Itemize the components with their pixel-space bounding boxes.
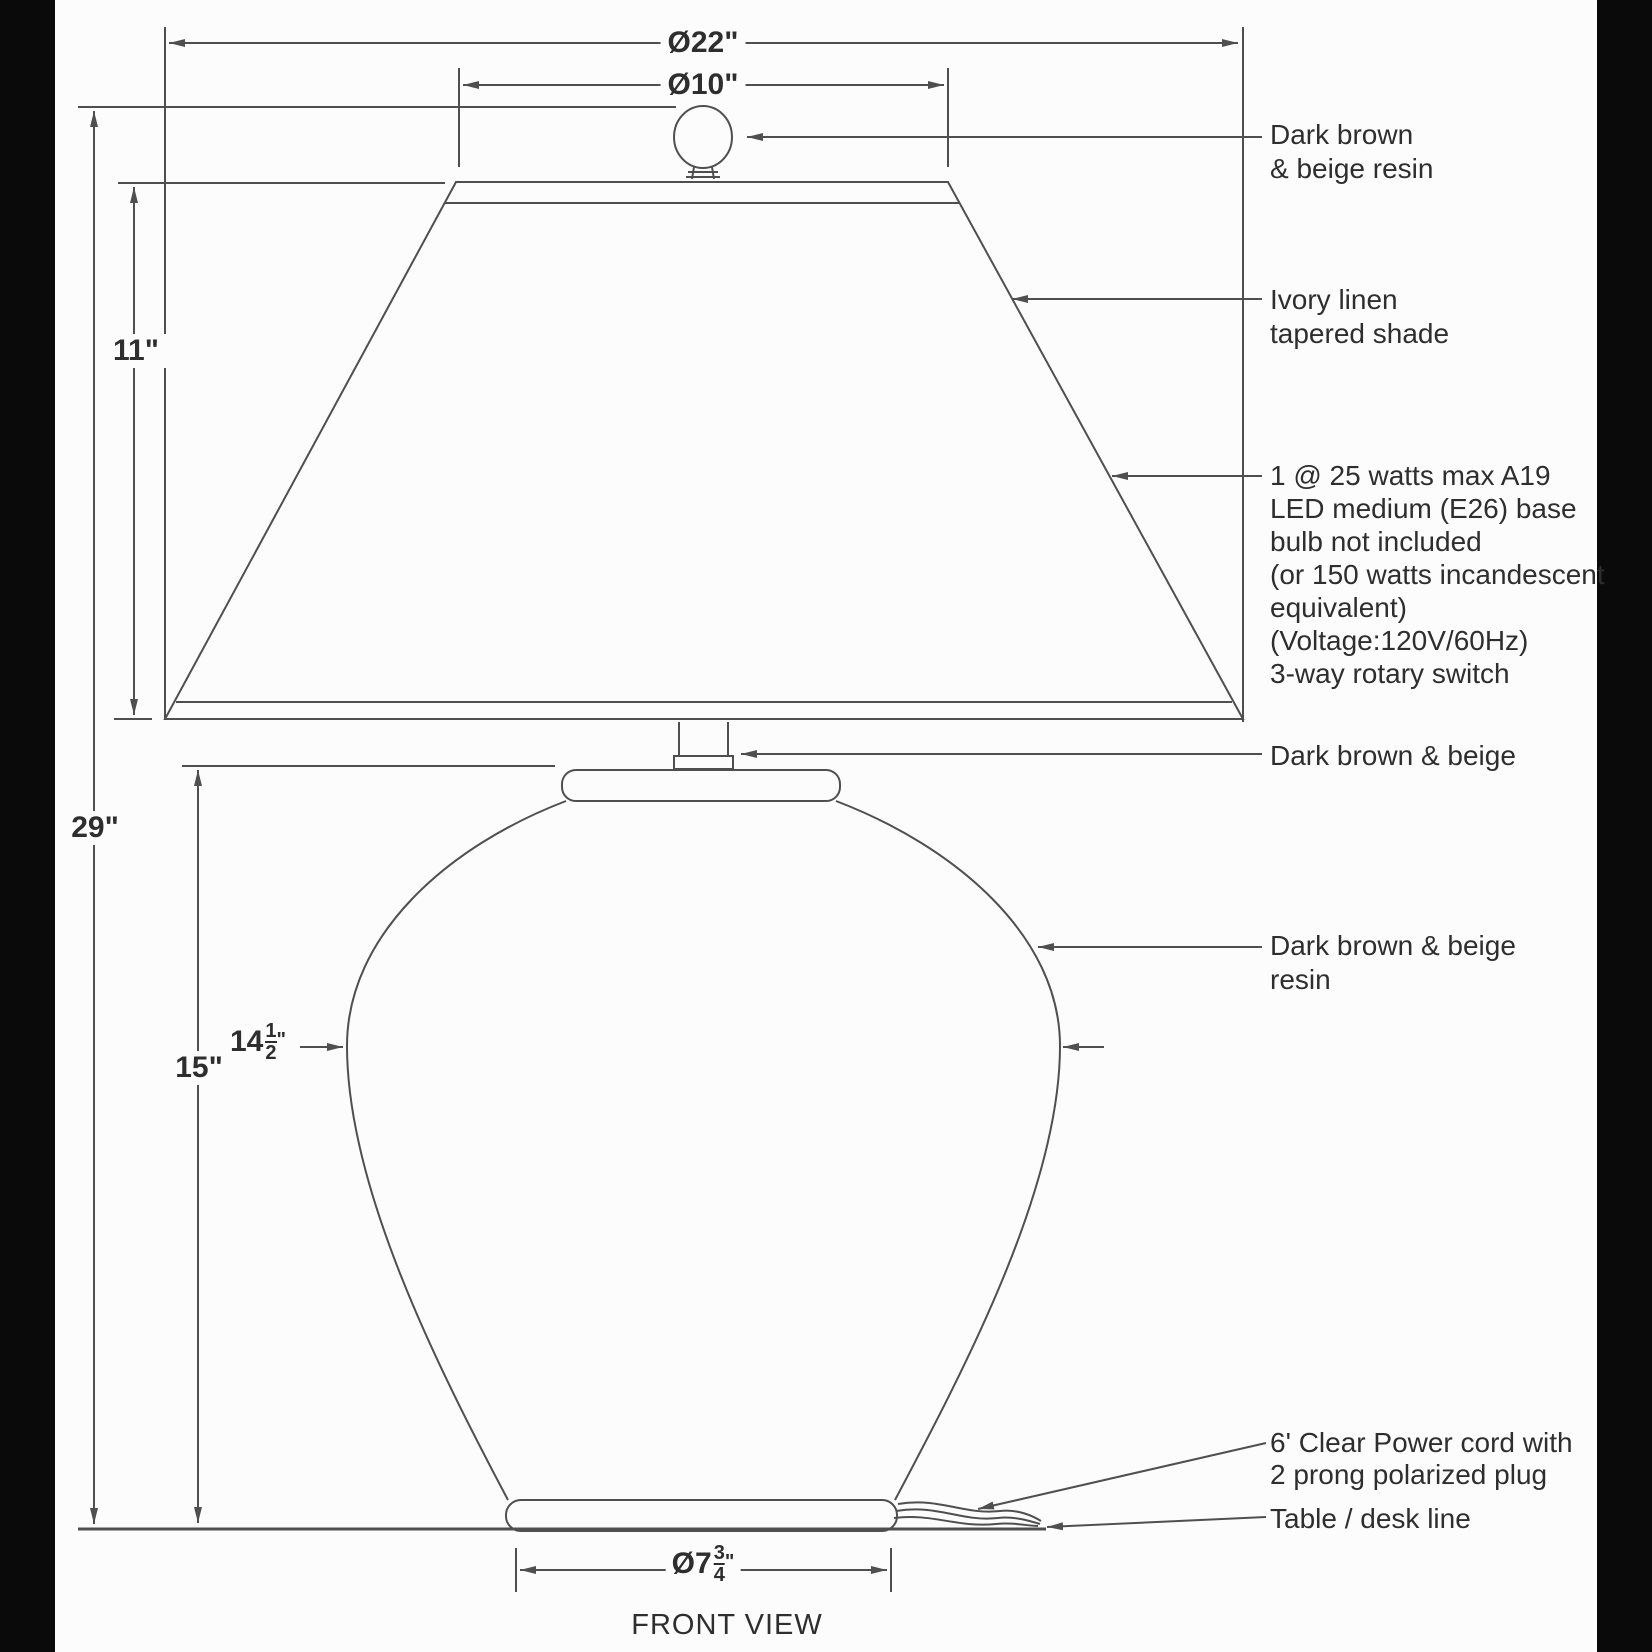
annotation-table: Table / desk line bbox=[1270, 1502, 1471, 1536]
dim-label-body-height: 15" bbox=[168, 1051, 230, 1085]
body-right-outline bbox=[836, 801, 1060, 1500]
annotation-neck: Dark brown & beige bbox=[1270, 739, 1516, 773]
base-diameter-unit: " bbox=[725, 1545, 734, 1579]
dim-label-base-diameter: Ø734" bbox=[666, 1543, 741, 1585]
leader-table bbox=[1047, 1517, 1266, 1527]
body-diameter-prefix: 14 bbox=[230, 1025, 263, 1059]
body-collar bbox=[562, 770, 840, 801]
body-left-outline bbox=[347, 801, 566, 1500]
annotation-shade: Ivory linen tapered shade bbox=[1270, 283, 1449, 351]
leader-cord bbox=[978, 1443, 1266, 1509]
neck-stem bbox=[679, 722, 728, 756]
view-caption: FRONT VIEW bbox=[631, 1608, 823, 1642]
lamp-dimension-drawing: Ø22" Ø10" 29" 11" 15" 1412" Ø734" Dark b… bbox=[0, 0, 1652, 1652]
body-diameter-unit: " bbox=[277, 1023, 286, 1057]
dim-label-shade-bottom-diameter: Ø22" bbox=[661, 26, 746, 60]
technical-drawing bbox=[0, 0, 1652, 1652]
dim-label-shade-top-diameter: Ø10" bbox=[661, 68, 746, 102]
finial-ball bbox=[674, 106, 732, 168]
lamp-base bbox=[506, 1500, 897, 1531]
annotation-bulb: 1 @ 25 watts max A19 LED medium (E26) ba… bbox=[1270, 459, 1605, 690]
neck-flange bbox=[674, 756, 733, 769]
dim-label-total-height: 29" bbox=[64, 811, 126, 845]
annotation-cord: 6' Clear Power cord with 2 prong polariz… bbox=[1270, 1427, 1573, 1491]
finial-rings bbox=[683, 172, 723, 182]
annotation-body: Dark brown & beige resin bbox=[1270, 929, 1516, 997]
dim-label-shade-height: 11" bbox=[106, 334, 166, 368]
body-diameter-fraction: 12 bbox=[265, 1021, 276, 1063]
annotation-finial: Dark brown & beige resin bbox=[1270, 118, 1433, 186]
shade-outline bbox=[165, 182, 1243, 719]
base-diameter-prefix: Ø7 bbox=[672, 1547, 712, 1581]
dim-label-body-diameter: 1412" bbox=[224, 1021, 292, 1063]
base-diameter-fraction: 34 bbox=[714, 1543, 725, 1585]
